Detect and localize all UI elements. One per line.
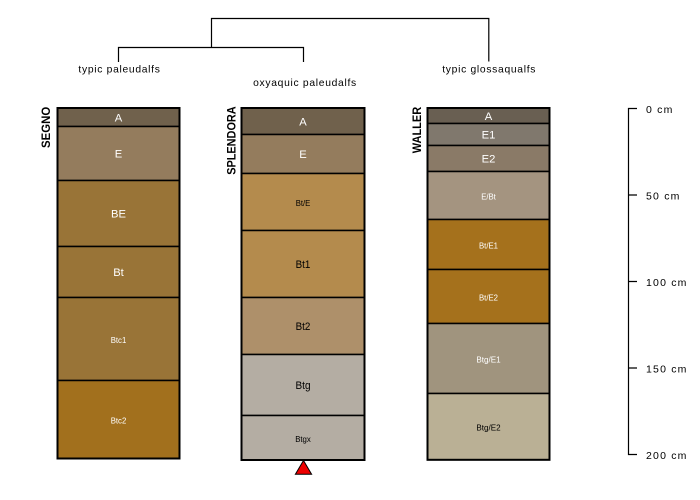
svg-text:BE: BE [111, 209, 126, 221]
svg-text:Btg/E1: Btg/E1 [476, 355, 500, 365]
svg-text:Bt2: Bt2 [296, 321, 311, 333]
svg-text:Bt1: Bt1 [296, 259, 311, 271]
svg-text:SEGNO: SEGNO [39, 107, 53, 148]
svg-text:100 cm: 100 cm [646, 277, 688, 289]
svg-text:E2: E2 [482, 154, 496, 166]
svg-text:150 cm: 150 cm [646, 363, 688, 375]
svg-text:SPLENDORA: SPLENDORA [225, 106, 239, 175]
svg-text:E1: E1 [482, 130, 496, 142]
svg-text:Bt: Bt [113, 267, 124, 279]
svg-text:Btg: Btg [296, 380, 311, 392]
svg-text:0 cm: 0 cm [646, 104, 674, 116]
svg-text:A: A [485, 111, 493, 123]
svg-text:WALLER: WALLER [410, 107, 424, 154]
svg-text:Btc1: Btc1 [111, 335, 127, 345]
svg-text:Bt/E2: Bt/E2 [479, 293, 498, 303]
svg-text:200 cm: 200 cm [646, 450, 688, 462]
svg-text:Btg/E2: Btg/E2 [476, 423, 500, 433]
svg-text:50 cm: 50 cm [646, 190, 681, 202]
svg-text:E: E [299, 149, 306, 161]
svg-text:A: A [299, 116, 307, 128]
svg-text:Bt/E: Bt/E [296, 198, 311, 208]
svg-text:typic glossaqualfs: typic glossaqualfs [442, 65, 536, 76]
svg-text:oxyaquic paleudalfs: oxyaquic paleudalfs [253, 78, 357, 89]
svg-text:A: A [115, 112, 123, 124]
svg-text:E/Bt: E/Bt [481, 192, 496, 202]
svg-text:Btgx: Btgx [295, 434, 311, 444]
svg-text:E: E [115, 149, 122, 161]
svg-text:Bt/E1: Bt/E1 [479, 241, 498, 251]
svg-text:Btc2: Btc2 [111, 416, 127, 426]
svg-text:typic paleudalfs: typic paleudalfs [78, 65, 160, 76]
